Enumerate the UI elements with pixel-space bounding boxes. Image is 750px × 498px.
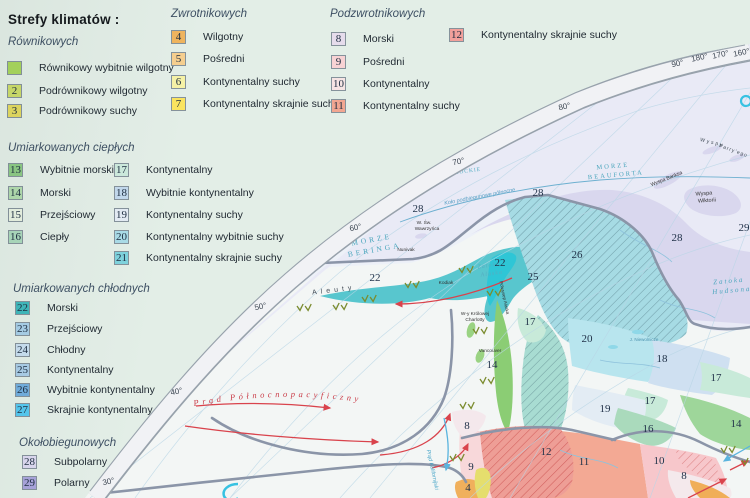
- zone-number: 25: [528, 271, 540, 283]
- place-label: Wyspa: [695, 190, 713, 197]
- zone-number: 8: [464, 420, 470, 432]
- zone-number: 10: [654, 455, 666, 467]
- lake: [632, 330, 644, 334]
- zone-number: 8: [681, 470, 687, 482]
- place-label: J. Niewolnicze: [630, 337, 659, 342]
- zone-number: 22: [495, 257, 506, 269]
- zone12-hatch: [478, 426, 574, 498]
- place-label: W-y Królowej: [461, 311, 489, 317]
- zone-number: 14: [487, 359, 499, 371]
- zone-number: 17: [525, 316, 537, 328]
- place-label: Wawrzyńca: [415, 226, 440, 232]
- zone-number: 19: [600, 403, 612, 415]
- lake: [608, 345, 618, 349]
- zone-number: 22: [370, 272, 381, 284]
- zone-number: 28: [533, 187, 545, 199]
- climate-map: MORZECZUKOCKIEMORZEBERINGAMORZEBEAUFORTA…: [0, 0, 750, 498]
- zone-number: 12: [541, 446, 552, 458]
- zone-number: 4: [465, 482, 471, 494]
- place-label: Wiktorii: [698, 197, 716, 204]
- place-label: Nunivak: [397, 247, 415, 253]
- place-label: Charlotty: [465, 317, 485, 323]
- atlas-photo: MORZECZUKOCKIEMORZEBERINGAMORZEBEAUFORTA…: [0, 0, 750, 498]
- zone-number: 9: [468, 461, 474, 473]
- zone-number: 29: [739, 222, 750, 234]
- zone-number: 16: [643, 423, 655, 435]
- zone-number: 17: [645, 395, 657, 407]
- place-label: Vancouver: [479, 348, 502, 354]
- zone-number: 28: [672, 232, 684, 244]
- zone-number: 17: [711, 372, 723, 384]
- zone-number: 28: [413, 203, 425, 215]
- zone-number: 20: [582, 333, 594, 345]
- zone-number: 18: [657, 353, 669, 365]
- zone-number: 14: [731, 418, 743, 430]
- zone-number: 26: [572, 249, 584, 261]
- zone-number: 11: [579, 456, 590, 468]
- place-label: Kodiak: [439, 280, 454, 286]
